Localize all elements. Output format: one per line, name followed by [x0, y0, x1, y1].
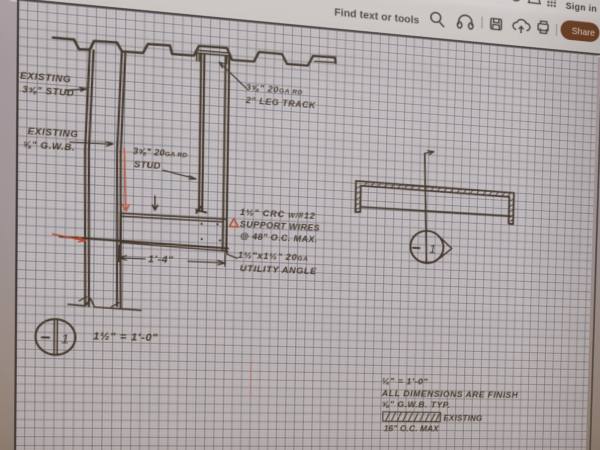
- svg-text:STUD: STUD: [134, 160, 161, 172]
- svg-text:UTILITY ANGLE: UTILITY ANGLE: [240, 264, 317, 277]
- svg-text:1½"x1½" 20GA: 1½"x1½" 20GA: [238, 251, 309, 264]
- svg-text:EXISTING: EXISTING: [28, 127, 79, 141]
- svg-text:1½" = 1'-0": 1½" = 1'-0": [93, 332, 158, 344]
- svg-text:¼" = 1'-0": ¼" = 1'-0": [382, 377, 429, 387]
- svg-text:1: 1: [61, 331, 69, 346]
- svg-text:⅝" G.W.B. TYP.: ⅝" G.W.B. TYP.: [382, 400, 451, 410]
- svg-text:Find text or tools: Find text or tools: [334, 7, 419, 26]
- svg-text:1'-4": 1'-4": [148, 254, 174, 266]
- svg-text:1: 1: [429, 243, 436, 256]
- svg-text:2" LEG TRACK: 2" LEG TRACK: [245, 96, 316, 111]
- svg-text:EXISTING: EXISTING: [20, 71, 71, 85]
- svg-text:Share: Share: [572, 26, 596, 38]
- svg-text:16" O.C. MAX: 16" O.C. MAX: [384, 424, 440, 434]
- svg-text:Sign in: Sign in: [566, 1, 598, 14]
- svg-text:3⅝" 20GA RD: 3⅝" 20GA RD: [133, 147, 188, 160]
- svg-text:1½" CRC W/#12: 1½" CRC W/#12: [240, 208, 316, 222]
- svg-text:⅝" G.W.B.: ⅝" G.W.B.: [23, 140, 75, 154]
- svg-text:EXISTING: EXISTING: [443, 414, 483, 423]
- svg-text:ALL DIMENSIONS ARE FINISH: ALL DIMENSIONS ARE FINISH: [381, 389, 518, 400]
- svg-text:@ 48" O.C. MAX.: @ 48" O.C. MAX.: [240, 232, 318, 245]
- svg-text:3⅝" 20GA RD: 3⅝" 20GA RD: [246, 83, 303, 97]
- svg-text:3⅝" STUD: 3⅝" STUD: [22, 85, 74, 99]
